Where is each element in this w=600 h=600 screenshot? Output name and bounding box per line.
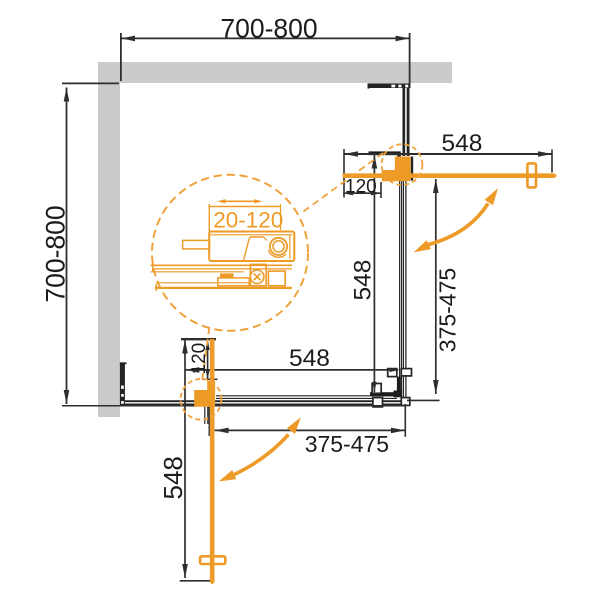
svg-text:375-475: 375-475 <box>434 268 460 352</box>
svg-text:120: 120 <box>189 343 210 375</box>
svg-text:548: 548 <box>349 260 376 301</box>
svg-text:548: 548 <box>158 456 188 499</box>
svg-text:120: 120 <box>345 177 377 198</box>
svg-text:548: 548 <box>289 345 330 372</box>
svg-text:375-475: 375-475 <box>305 431 389 457</box>
svg-text:20-120: 20-120 <box>213 207 283 232</box>
svg-text:548: 548 <box>442 130 483 157</box>
svg-text:700-800: 700-800 <box>40 205 70 302</box>
svg-text:700-800: 700-800 <box>220 14 317 44</box>
